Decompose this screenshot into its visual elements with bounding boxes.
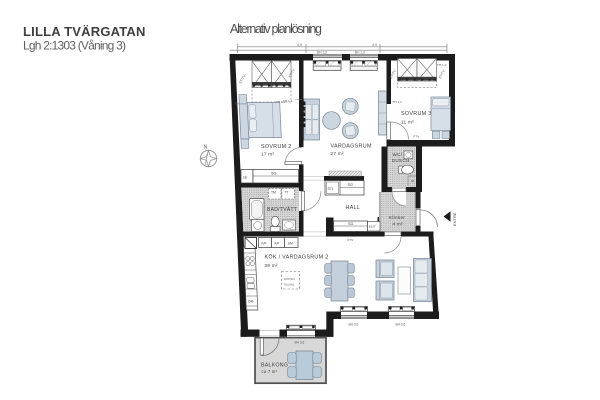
svg-text:SOVRUM 3: SOVRUM 3 [401, 111, 432, 117]
svg-text:LILLA TVÄRGATAN: LILLA TVÄRGATAN [23, 24, 147, 39]
svg-text:BH 0,6: BH 0,6 [349, 322, 359, 326]
svg-text:SG: SG [348, 183, 354, 187]
svg-text:KÖKSÖ: KÖKSÖ [284, 277, 295, 281]
svg-text:FTV: FTV [414, 135, 421, 139]
svg-text:ENTRÉ: ENTRÉ [452, 212, 457, 226]
svg-text:BH 1,3: BH 1,3 [355, 50, 365, 54]
svg-text:TH 1,1: TH 1,1 [283, 99, 293, 103]
svg-text:17 m²: 17 m² [261, 151, 274, 156]
svg-text:DM: DM [248, 300, 254, 304]
svg-text:27 m²: 27 m² [331, 151, 344, 156]
svg-text:ST1: ST1 [328, 187, 334, 191]
svg-text:Alternativ planlösning: Alternativ planlösning [230, 22, 322, 36]
svg-text:SG: SG [348, 222, 354, 226]
svg-text:TH 1,1: TH 1,1 [393, 100, 403, 104]
svg-text:K/F: K/F [262, 241, 267, 245]
svg-text:11 m²: 11 m² [401, 119, 414, 124]
svg-text:UM: UM [288, 241, 293, 245]
svg-text:HALL: HALL [346, 205, 361, 211]
svg-text:N: N [204, 145, 208, 151]
svg-text:VARDAGSRUM: VARDAGSRUM [331, 143, 372, 149]
svg-text:BALKONG: BALKONG [261, 363, 288, 369]
svg-text:SOVRUM 2: SOVRUM 2 [261, 144, 292, 150]
svg-text:TILLVAL: TILLVAL [283, 282, 295, 286]
svg-text:39 m²: 39 m² [265, 263, 278, 268]
svg-text:BH 0,6: BH 0,6 [295, 341, 305, 345]
svg-text:FTV: FTV [348, 238, 355, 242]
svg-text:SG: SG [271, 172, 277, 176]
svg-text:FTV: FTV [303, 106, 307, 112]
svg-text:KÖK / VARDAGSRUM 2: KÖK / VARDAGSRUM 2 [265, 254, 329, 261]
svg-text:BH 0,6: BH 0,6 [396, 322, 406, 326]
svg-text:Klinker: Klinker [389, 215, 405, 220]
svg-text:TM: TM [271, 191, 276, 195]
svg-text:BH 1,3: BH 1,3 [317, 50, 327, 54]
svg-text:WC/: WC/ [393, 152, 403, 157]
svg-text:Lgh 2:1303 (Våning 3): Lgh 2:1303 (Våning 3) [23, 39, 126, 53]
svg-text:TT: TT [285, 191, 289, 195]
svg-text:TH 1,2: TH 1,2 [437, 63, 447, 67]
svg-text:DUSCH: DUSCH [392, 158, 410, 163]
svg-text:ca 7 m²: ca 7 m² [262, 369, 278, 374]
svg-text:4 m²: 4 m² [393, 222, 404, 227]
svg-text:EL/IT: EL/IT [369, 224, 376, 228]
svg-text:4,9: 4,9 [372, 43, 377, 47]
svg-text:K/F: K/F [275, 241, 280, 245]
svg-text:BAD/TVÄTT: BAD/TVÄTT [267, 206, 297, 213]
svg-text:4,9: 4,9 [297, 43, 302, 47]
